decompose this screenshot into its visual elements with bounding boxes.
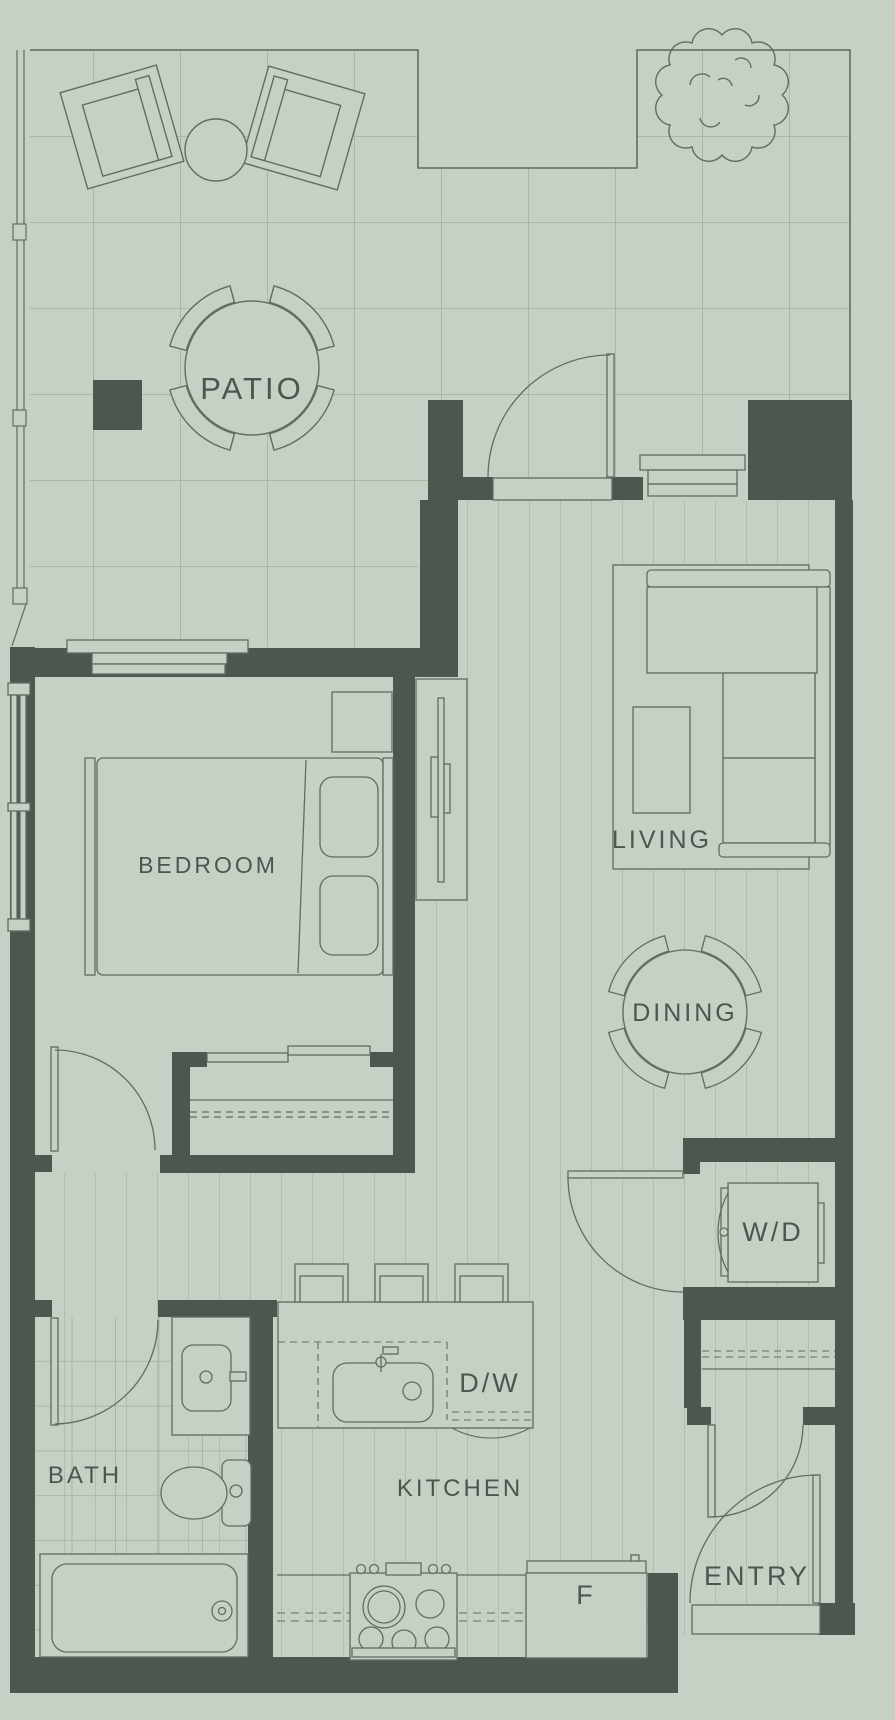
wall-entry-corner [818, 1603, 855, 1635]
toilet-bowl [161, 1467, 227, 1519]
stove-knob [357, 1565, 366, 1574]
bedroom-window-north [67, 640, 248, 674]
cabinet-handle [431, 757, 438, 817]
floorplan-drawing: PATIO BEDROOM LIVING DINING W/D BATH KIT… [0, 0, 895, 1720]
stove-knob [429, 1565, 438, 1574]
burner-inner [368, 1591, 400, 1623]
stove-knob [442, 1565, 451, 1574]
wall-bottom [10, 1657, 678, 1693]
bar-stool-seat [300, 1276, 343, 1302]
wall-patio-door-jamb-right [612, 477, 643, 500]
bed-headboard [383, 758, 393, 975]
fridge-handle [631, 1555, 639, 1561]
entry-door-threshold [692, 1605, 820, 1634]
closet-sliding-door [207, 1053, 288, 1062]
stove-knob [370, 1565, 379, 1574]
wall-kitchen-entry [648, 1573, 678, 1663]
bath-vanity [172, 1317, 250, 1435]
wall-entry-stub-right [803, 1407, 853, 1425]
dining-label: DINING [632, 999, 738, 1027]
floorplan: PATIO BEDROOM LIVING DINING W/D BATH KIT… [0, 0, 895, 1720]
wall-bath-east [248, 1317, 273, 1657]
pillow [320, 876, 378, 955]
stove-panel [386, 1563, 421, 1575]
wall-bedroom-south [160, 1155, 415, 1173]
stove [350, 1563, 457, 1660]
wall-closet-nw [172, 1052, 207, 1067]
patio-table [185, 301, 319, 435]
bathtub-drain-dot [219, 1608, 226, 1615]
sofa-cushion [723, 673, 815, 758]
bedroom-label: BEDROOM [138, 852, 278, 878]
bar-stool-seat [460, 1276, 503, 1302]
sofa-cushion [723, 758, 815, 843]
closet-sliding-door [288, 1046, 370, 1055]
cabinet-door-panel [438, 698, 444, 882]
wall-right [835, 500, 853, 1605]
nightstand [332, 692, 392, 752]
wall-wd-north [683, 1138, 835, 1162]
wd-rear-bracket [818, 1203, 824, 1263]
wall-wd-notch [683, 1160, 700, 1174]
bedroom-door-leaf [51, 1047, 58, 1151]
sofa-arm [719, 843, 830, 857]
bath-label: BATH [48, 1462, 122, 1489]
patio-side-table [185, 119, 247, 181]
patio-label: PATIO [200, 371, 303, 406]
entry-door-leaf [813, 1475, 820, 1603]
patio-door-threshold [493, 478, 612, 500]
fridge-label: F [576, 1580, 596, 1610]
wall-bath-north [158, 1300, 277, 1317]
living-window [640, 455, 745, 496]
entry-label: ENTRY [704, 1561, 810, 1591]
bathtub-inner [52, 1564, 237, 1652]
dishwasher-label: D/W [459, 1368, 520, 1398]
fridge-counter [527, 1561, 646, 1573]
wall-closet-ne [370, 1052, 393, 1067]
wall-bedroom-south-stub [35, 1155, 52, 1172]
wd-label: W/D [742, 1217, 803, 1247]
sofa-back-top [647, 570, 830, 587]
kitchen-label: KITCHEN [397, 1475, 523, 1502]
cabinet-handle [444, 764, 450, 813]
wd-door-leaf [568, 1171, 683, 1178]
bar-stool-seat [380, 1276, 423, 1302]
toilet-flush [230, 1485, 242, 1497]
burner [416, 1590, 444, 1618]
patio-column [93, 380, 142, 430]
bed-footboard [85, 758, 95, 975]
bath-faucet [230, 1372, 246, 1381]
wall-wd-south [683, 1287, 835, 1320]
bar-stools [295, 1264, 508, 1302]
wall-entry-closet-west [684, 1320, 701, 1408]
wd-knob [720, 1228, 728, 1236]
wall-entry-stub-left [687, 1407, 711, 1425]
sink-drain [403, 1382, 421, 1400]
patio-door-leaf [607, 354, 614, 477]
wall-bedroom-east [393, 677, 415, 1173]
bathtub [40, 1554, 248, 1657]
bath-sink-drain [200, 1371, 212, 1383]
wall-patio-door-jamb-foot [428, 477, 493, 500]
pillow [320, 777, 378, 857]
wall-bath-north-stub [35, 1300, 52, 1317]
wall-closet-west [172, 1052, 190, 1157]
wall-corridor [420, 500, 458, 648]
wall-top-right-corner [748, 400, 852, 500]
living-label: LIVING [612, 826, 712, 854]
faucet-lever [383, 1347, 398, 1354]
bath-door-leaf [51, 1318, 58, 1425]
hall-cabinet [416, 679, 467, 900]
stove-handle [352, 1648, 455, 1657]
sofa-seat [647, 587, 817, 673]
coffee-table [633, 707, 690, 813]
entry-closet-door-leaf [708, 1425, 715, 1517]
patio-dining-set [170, 286, 334, 450]
